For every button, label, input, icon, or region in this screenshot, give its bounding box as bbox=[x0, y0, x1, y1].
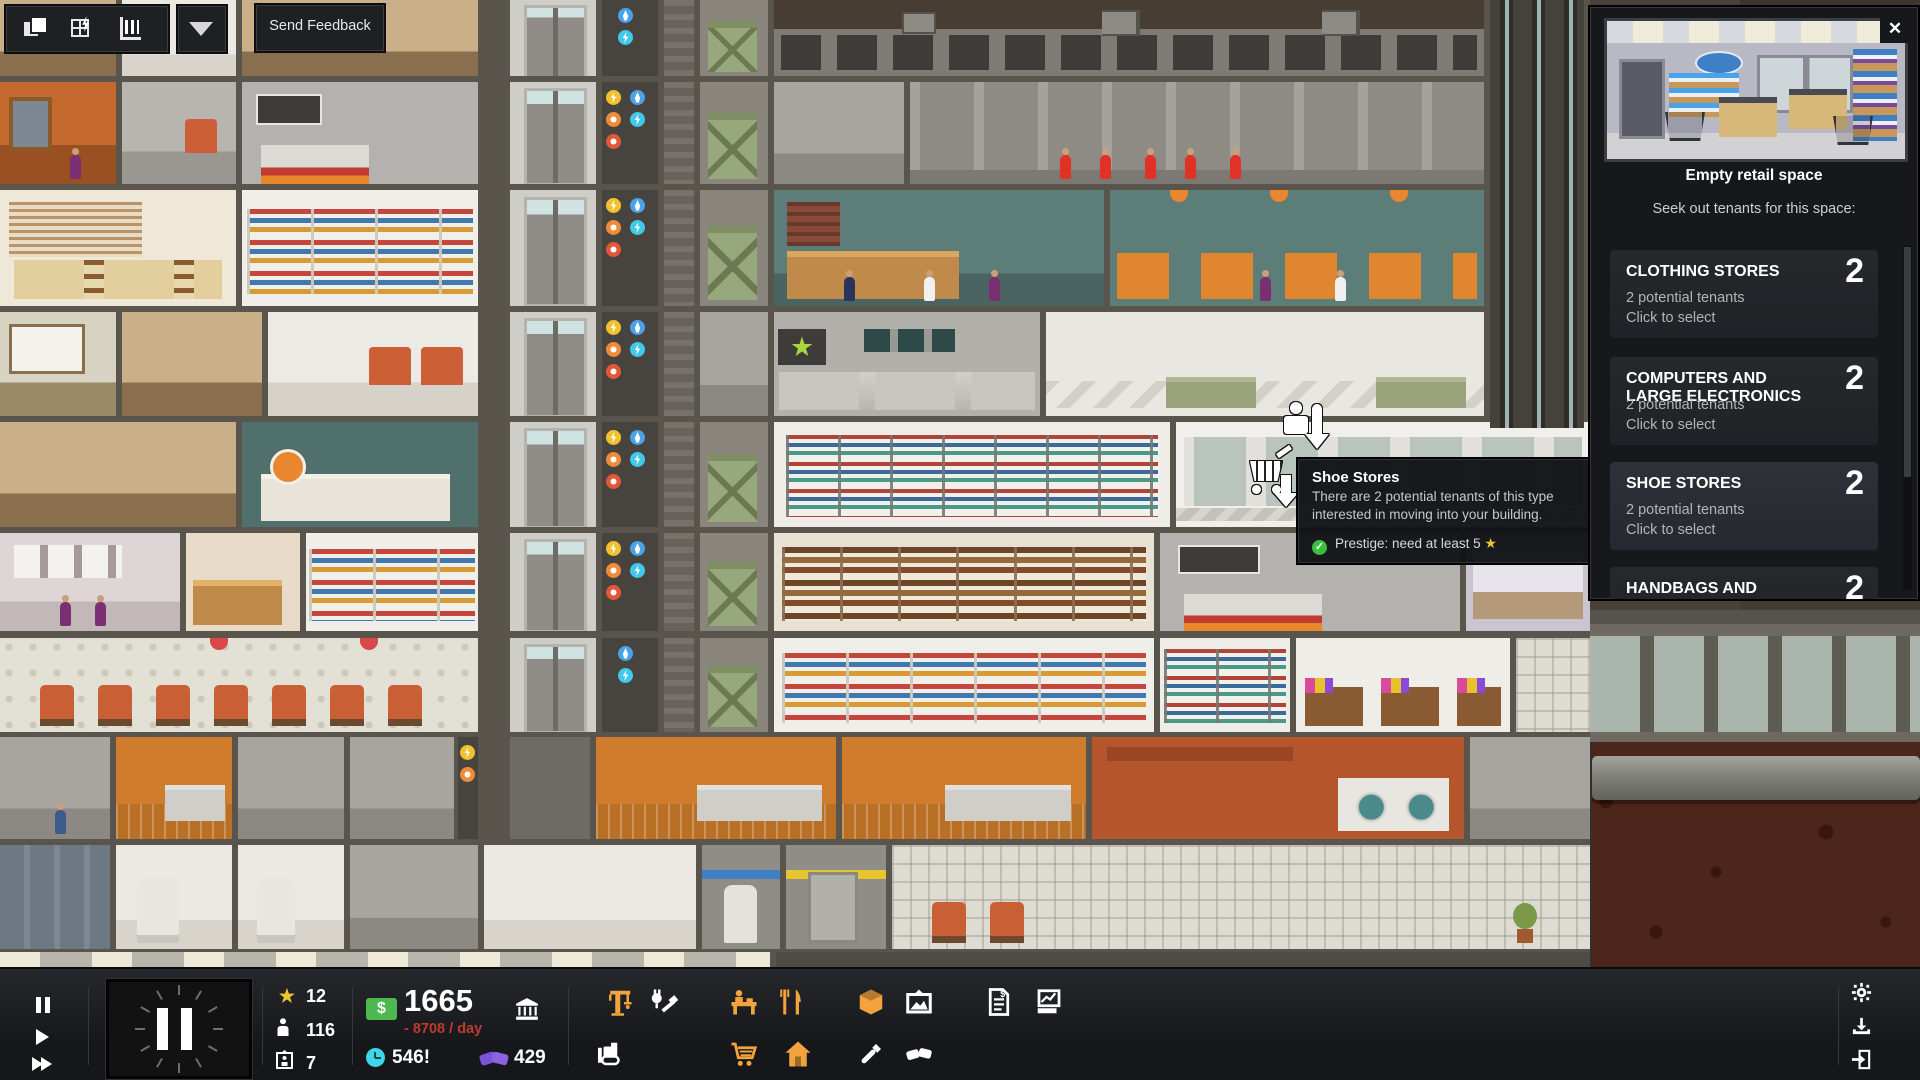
utility-icon bbox=[630, 541, 645, 556]
plant bbox=[1512, 903, 1538, 943]
room-elev[interactable] bbox=[510, 422, 596, 527]
reports-icon[interactable] bbox=[1034, 987, 1064, 1017]
money-per-day: - 8708 / day bbox=[404, 1021, 482, 1037]
tenant-category-card[interactable]: SHOE STORES22 potential tenantsClick to … bbox=[1610, 462, 1878, 550]
person bbox=[844, 277, 855, 301]
category-line2: Click to select bbox=[1626, 522, 1715, 538]
goods-icon[interactable] bbox=[856, 987, 886, 1017]
room-shaftu[interactable] bbox=[602, 422, 658, 527]
status-bar: ★12 116 7 $ 1665 - 8708 / day 546! 429 $ bbox=[0, 967, 1920, 1080]
room-elev[interactable] bbox=[510, 0, 596, 76]
room-trash[interactable] bbox=[700, 422, 768, 527]
room-office-plan[interactable] bbox=[0, 312, 116, 416]
room-grayroom[interactable] bbox=[774, 82, 904, 184]
utilities-icon[interactable] bbox=[648, 987, 678, 1017]
room-lounge[interactable] bbox=[122, 82, 236, 184]
room-stairs[interactable] bbox=[664, 533, 694, 631]
room-laundry[interactable] bbox=[1092, 737, 1464, 839]
room-shaftu[interactable] bbox=[602, 0, 658, 76]
person bbox=[70, 155, 81, 179]
pause-icon[interactable] bbox=[36, 997, 50, 1013]
scrollbar-thumb[interactable] bbox=[1904, 247, 1911, 477]
room-util-blue[interactable] bbox=[702, 845, 780, 949]
room-elev[interactable] bbox=[510, 533, 596, 631]
room-elev[interactable] bbox=[510, 190, 596, 306]
room-store[interactable] bbox=[306, 533, 478, 631]
utility-icon bbox=[618, 646, 633, 661]
armchair bbox=[98, 685, 132, 726]
utility-icon bbox=[606, 198, 621, 213]
room-construction[interactable] bbox=[910, 82, 1484, 184]
money-icon: $ bbox=[366, 998, 397, 1020]
room-stairs[interactable] bbox=[664, 422, 694, 527]
room-teal-rest[interactable] bbox=[774, 190, 1104, 306]
category-line1: 2 potential tenants bbox=[1626, 290, 1745, 306]
room-wallp2[interactable] bbox=[1516, 638, 1590, 732]
room-trash[interactable] bbox=[700, 82, 768, 184]
utility-icon bbox=[606, 430, 621, 445]
tenant-category-card[interactable]: HANDBAGS AND BRIEFCASES2 bbox=[1610, 567, 1878, 601]
armchair bbox=[932, 902, 966, 943]
finances-icon[interactable]: $ bbox=[984, 987, 1014, 1017]
room-diner[interactable] bbox=[1110, 190, 1484, 306]
room-cafe[interactable] bbox=[242, 422, 478, 527]
room-trash[interactable] bbox=[700, 0, 768, 76]
room-trash[interactable] bbox=[700, 533, 768, 631]
play-icon[interactable] bbox=[36, 1029, 57, 1045]
armchair bbox=[990, 902, 1024, 943]
utility-icon bbox=[630, 430, 645, 445]
room-grayroom[interactable] bbox=[1470, 737, 1590, 839]
room-empty-stripe[interactable] bbox=[1046, 312, 1484, 416]
tooltip-body: There are 2 potential tenants of this ty… bbox=[1312, 488, 1576, 524]
armchair bbox=[330, 685, 364, 726]
utility-icon bbox=[630, 320, 645, 335]
room-store-gray[interactable] bbox=[242, 82, 478, 184]
floor bbox=[0, 638, 1590, 732]
cafe-logo bbox=[270, 449, 306, 485]
room-lounge2[interactable] bbox=[268, 312, 478, 416]
category-line2: Click to select bbox=[1626, 417, 1715, 433]
send-feedback-panel: Send Feedback bbox=[254, 3, 386, 53]
utility-icon bbox=[606, 242, 621, 257]
requirement-text: Prestige: need at least 5 bbox=[1335, 536, 1481, 551]
deals-icon[interactable] bbox=[904, 1039, 934, 1069]
pendant-lamp bbox=[1390, 190, 1408, 202]
close-icon[interactable]: ✕ bbox=[1880, 15, 1910, 43]
tenant-category-card[interactable]: CLOTHING STORES22 potential tenantsClick… bbox=[1610, 250, 1878, 338]
floor bbox=[0, 845, 1590, 949]
person bbox=[1145, 155, 1156, 179]
room-stairs[interactable] bbox=[664, 0, 694, 76]
room-elev[interactable] bbox=[510, 638, 596, 732]
buzz-value: 546! bbox=[392, 1047, 430, 1069]
utility-icon bbox=[630, 563, 645, 578]
floors-stat: 7 bbox=[276, 1050, 316, 1074]
armchair bbox=[40, 685, 74, 726]
room-stairs[interactable] bbox=[664, 312, 694, 416]
utility-icon bbox=[606, 364, 621, 379]
room-trash[interactable] bbox=[700, 190, 768, 306]
send-feedback-button[interactable]: Send Feedback bbox=[256, 5, 384, 47]
panel-subtitle: Seek out tenants for this space: bbox=[1590, 201, 1918, 217]
room-shoes[interactable] bbox=[0, 190, 236, 306]
room-elev[interactable] bbox=[510, 312, 596, 416]
settings-gear-icon[interactable] bbox=[1850, 981, 1873, 1004]
person bbox=[1100, 155, 1111, 179]
category-name: CLOTHING STORES bbox=[1626, 263, 1780, 281]
room-shaftu[interactable] bbox=[602, 312, 658, 416]
utility-icon bbox=[606, 474, 621, 489]
category-line2: Click to select bbox=[1626, 310, 1715, 326]
utility-icon bbox=[618, 8, 633, 23]
buzz-icon bbox=[366, 1048, 385, 1067]
category-name: SHOE STORES bbox=[1626, 475, 1741, 493]
water-heater bbox=[257, 878, 295, 942]
utility-icon bbox=[630, 90, 645, 105]
retail-space-illustration bbox=[1604, 18, 1908, 162]
person bbox=[60, 602, 71, 626]
room-stairs[interactable] bbox=[664, 638, 694, 732]
floor bbox=[0, 0, 1590, 76]
room-shaftu[interactable] bbox=[602, 190, 658, 306]
green-star-sign: ★ bbox=[778, 329, 826, 365]
floor bbox=[0, 737, 1590, 839]
room-whiteroom[interactable] bbox=[116, 845, 232, 949]
room-elev[interactable] bbox=[510, 82, 596, 184]
room-store[interactable] bbox=[242, 190, 478, 306]
utility-icon bbox=[460, 767, 475, 782]
tooltip-requirement: ✓Prestige: need at least 5 ★ bbox=[1312, 535, 1497, 555]
room-elec-store[interactable]: ★ bbox=[774, 312, 1040, 416]
art-frame-icon[interactable] bbox=[904, 987, 934, 1017]
svg-text:$: $ bbox=[1000, 989, 1005, 999]
toolbar-dropdown[interactable] bbox=[176, 4, 228, 54]
armchair bbox=[272, 685, 306, 726]
floor bbox=[0, 82, 1590, 184]
utility-icon bbox=[630, 198, 645, 213]
money-balance: 1665 bbox=[404, 983, 473, 1019]
category-name: HANDBAGS AND BRIEFCASES bbox=[1626, 580, 1826, 601]
utility-icon bbox=[606, 563, 621, 578]
room-flowers[interactable] bbox=[1296, 638, 1510, 732]
utility-icon bbox=[606, 541, 621, 556]
person bbox=[989, 277, 1000, 301]
floor bbox=[0, 190, 1590, 306]
room-books[interactable] bbox=[774, 422, 1170, 527]
view-toolbar bbox=[4, 4, 170, 54]
restaurant-icon[interactable] bbox=[777, 987, 807, 1017]
armchair bbox=[388, 685, 422, 726]
room-store[interactable] bbox=[774, 638, 1154, 732]
room-vents[interactable] bbox=[774, 0, 1484, 76]
room-shaftu[interactable] bbox=[458, 737, 478, 839]
person bbox=[1335, 277, 1346, 301]
fast-forward-icon[interactable] bbox=[32, 1057, 50, 1071]
person bbox=[1185, 155, 1196, 179]
utility-icon bbox=[606, 342, 621, 357]
room-office[interactable] bbox=[122, 312, 262, 416]
room-grayroom[interactable] bbox=[238, 737, 344, 839]
retail-cart-icon[interactable] bbox=[729, 1039, 759, 1069]
room-store-dark[interactable] bbox=[774, 533, 1154, 631]
category-line1: 2 potential tenants bbox=[1626, 397, 1745, 413]
room-grayroom[interactable] bbox=[350, 845, 478, 949]
paint-icon[interactable] bbox=[856, 1039, 886, 1069]
shopping-cart-marker-icon[interactable] bbox=[1248, 447, 1296, 511]
bank-icon[interactable] bbox=[514, 996, 540, 1022]
star-icon: ★ bbox=[276, 986, 298, 1007]
move-out-marker-icon[interactable] bbox=[1282, 400, 1332, 456]
building-stats-icon[interactable] bbox=[116, 14, 146, 44]
utility-icon bbox=[630, 112, 645, 127]
armchair bbox=[214, 685, 248, 726]
underground-pipe bbox=[1592, 756, 1920, 800]
room-workshop[interactable] bbox=[596, 737, 836, 839]
favors-value: 429 bbox=[514, 1047, 546, 1069]
room-grayroom[interactable] bbox=[0, 737, 110, 839]
person bbox=[924, 277, 935, 301]
utility-icon bbox=[630, 342, 645, 357]
utility-icon bbox=[618, 668, 633, 683]
room-grayroom-dark[interactable] bbox=[510, 737, 590, 839]
utility-icon bbox=[606, 320, 621, 335]
water-heater bbox=[137, 878, 179, 942]
table bbox=[1376, 377, 1466, 408]
population-stat: 116 bbox=[276, 1018, 335, 1041]
pendant-lamp bbox=[360, 638, 378, 650]
person bbox=[1060, 155, 1071, 179]
game-screen: ★ Send Feedback ✕ Empty retail space See bbox=[0, 0, 1920, 1080]
office-desk-icon[interactable] bbox=[729, 987, 759, 1017]
shoe-stores-tooltip: Shoe Stores There are 2 potential tenant… bbox=[1296, 457, 1596, 565]
person bbox=[55, 810, 66, 834]
layers-icon[interactable] bbox=[20, 14, 50, 44]
pendant-lamp bbox=[1170, 190, 1188, 202]
category-count: 2 bbox=[1845, 359, 1864, 398]
floor bbox=[0, 952, 1590, 967]
crane-icon[interactable] bbox=[604, 987, 634, 1017]
category-count: 2 bbox=[1845, 569, 1864, 601]
room-stairs[interactable] bbox=[664, 82, 694, 184]
room-whiteroom[interactable] bbox=[238, 845, 344, 949]
utility-icon bbox=[606, 112, 621, 127]
game-clock bbox=[106, 979, 252, 1079]
utility-icon bbox=[630, 452, 645, 467]
utility-icon bbox=[618, 30, 633, 45]
room-waiting[interactable] bbox=[0, 638, 478, 732]
utility-icon bbox=[606, 585, 621, 600]
favors-icon bbox=[478, 1051, 512, 1067]
room-grayroom[interactable] bbox=[700, 312, 768, 416]
check-icon: ✓ bbox=[1312, 540, 1327, 555]
room-bedroom[interactable] bbox=[0, 82, 116, 184]
room-util-lock[interactable] bbox=[0, 845, 110, 949]
dropdown-arrow-icon bbox=[189, 22, 213, 48]
room-lightceil[interactable] bbox=[0, 952, 770, 967]
utility-icon bbox=[606, 134, 621, 149]
tenant-category-card[interactable]: COMPUTERS AND LARGE ELECTRONICS22 potent… bbox=[1610, 357, 1878, 445]
armchair bbox=[156, 685, 190, 726]
room-stairs[interactable] bbox=[664, 190, 694, 306]
room-util-yellow[interactable] bbox=[786, 845, 886, 949]
person bbox=[95, 602, 106, 626]
utility-icon bbox=[460, 745, 475, 760]
room-shaftu[interactable] bbox=[602, 638, 658, 732]
scrollbar[interactable] bbox=[1903, 245, 1912, 590]
elevator-icon bbox=[276, 1050, 298, 1069]
save-icon[interactable] bbox=[1850, 1015, 1873, 1038]
person bbox=[1230, 155, 1241, 179]
room-salon[interactable] bbox=[0, 533, 180, 631]
room-shaftu[interactable] bbox=[602, 82, 658, 184]
room-workshop[interactable] bbox=[842, 737, 1086, 839]
utility-icon bbox=[630, 220, 645, 235]
room-trash[interactable] bbox=[700, 638, 768, 732]
floor: ★ bbox=[0, 312, 1590, 416]
utility-icon bbox=[606, 90, 621, 105]
utility-icon bbox=[606, 220, 621, 235]
room-darkstrip[interactable] bbox=[776, 952, 1590, 967]
room-office[interactable] bbox=[0, 422, 236, 527]
table bbox=[1166, 377, 1256, 408]
service-tower bbox=[1490, 0, 1584, 428]
person-icon bbox=[276, 1018, 298, 1036]
bulldozer-icon[interactable] bbox=[596, 1039, 626, 1069]
tooltip-title: Shoe Stores bbox=[1312, 469, 1400, 486]
room-wallp2[interactable] bbox=[892, 845, 1590, 949]
prestige-stat: ★12 bbox=[276, 986, 326, 1007]
room-books[interactable] bbox=[1160, 638, 1290, 732]
panel-title: Empty retail space bbox=[1590, 167, 1918, 185]
street-facade bbox=[1590, 610, 1920, 746]
room-shaftu[interactable] bbox=[602, 533, 658, 631]
pendant-lamp bbox=[1270, 190, 1288, 202]
room-grayroom[interactable] bbox=[350, 737, 454, 839]
blueprint-grid-icon[interactable] bbox=[68, 14, 98, 44]
pendant-lamp bbox=[210, 638, 228, 650]
person bbox=[1260, 277, 1271, 301]
category-count: 2 bbox=[1845, 252, 1864, 291]
utility-icon bbox=[606, 452, 621, 467]
tenant-panel: ✕ Empty retail space Seek out tenants fo… bbox=[1588, 5, 1920, 601]
apartment-icon[interactable] bbox=[783, 1039, 813, 1069]
room-bakery[interactable] bbox=[186, 533, 300, 631]
star-icon: ★ bbox=[1484, 535, 1497, 551]
exit-icon[interactable] bbox=[1850, 1048, 1873, 1071]
category-count: 2 bbox=[1845, 464, 1864, 503]
category-line1: 2 potential tenants bbox=[1626, 502, 1745, 518]
room-whiteroom[interactable] bbox=[484, 845, 696, 949]
room-workshop[interactable] bbox=[116, 737, 232, 839]
